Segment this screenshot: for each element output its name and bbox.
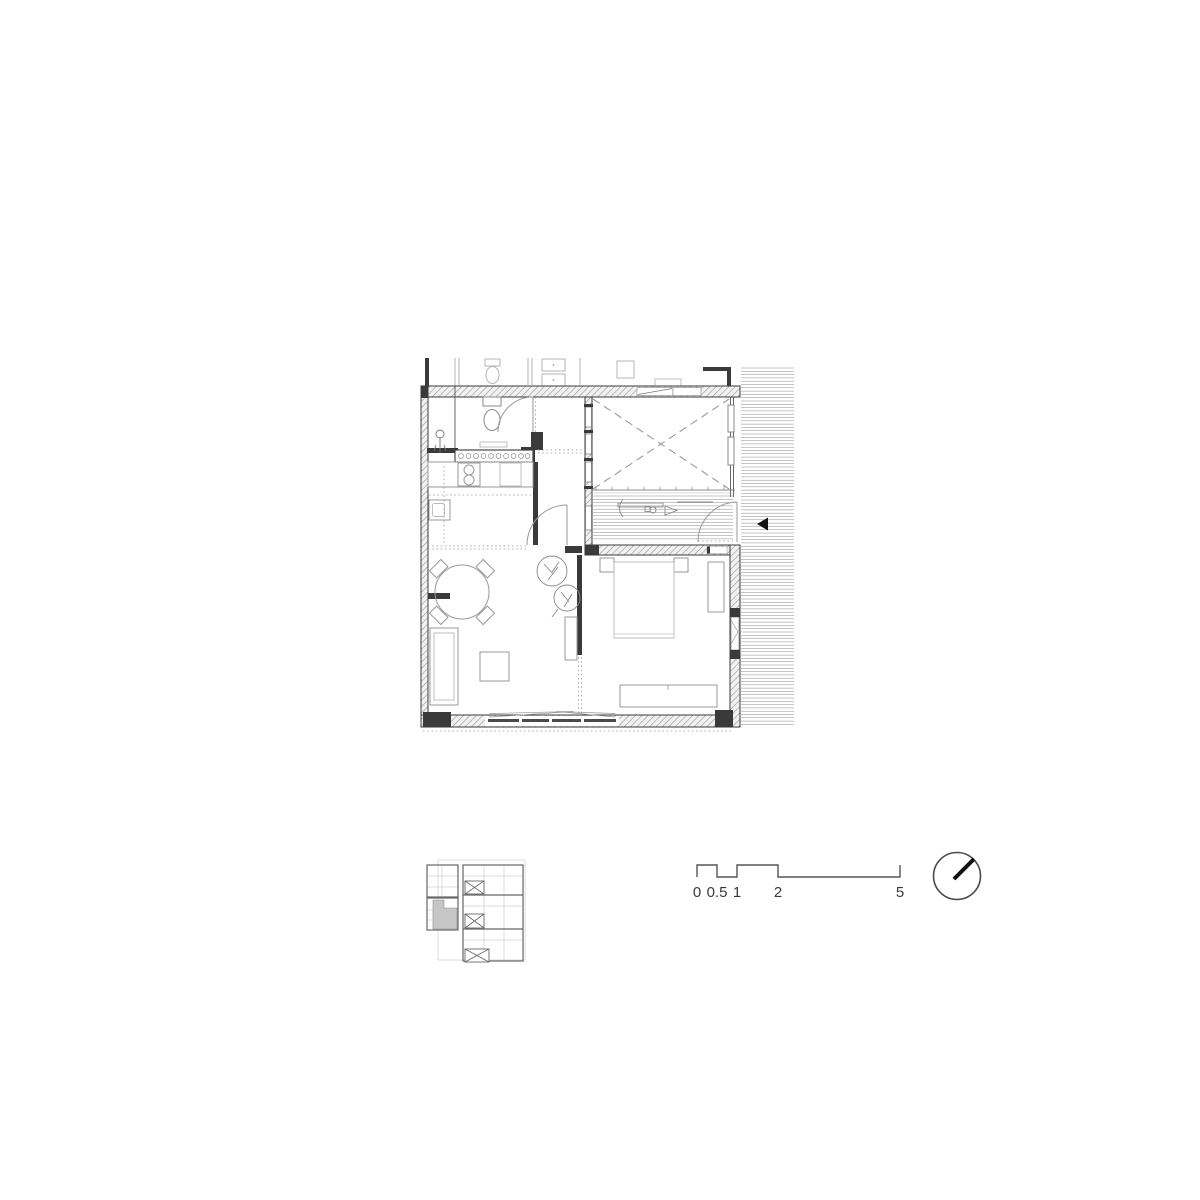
- sofa-cushions: [434, 633, 454, 700]
- key-plan-patios: [465, 881, 489, 962]
- dresser: [620, 685, 717, 707]
- neighbor-wall-stub: [425, 358, 429, 387]
- burner: [464, 475, 474, 485]
- burner: [464, 465, 474, 475]
- neighbor-toilet-tank: [485, 359, 500, 366]
- bed: [614, 562, 674, 638]
- scale-label-1: 1: [733, 884, 741, 901]
- corner-pier: [423, 712, 451, 727]
- neighbor-toilet-bowl: [486, 367, 499, 384]
- bathroom: [434, 397, 533, 452]
- walls: [421, 386, 740, 728]
- scale-label-2: 2: [774, 884, 782, 901]
- nightstand: [674, 558, 688, 572]
- plant: [552, 585, 580, 617]
- chair: [476, 606, 494, 624]
- plant: [537, 556, 567, 586]
- toilet-tank: [483, 397, 501, 406]
- glazing-panels: [488, 719, 616, 722]
- scale-bar-line: [697, 865, 900, 877]
- patio: [592, 399, 735, 493]
- chair: [476, 560, 494, 578]
- corner-pier: [715, 710, 733, 727]
- nightstand: [600, 558, 614, 572]
- dining-table: [435, 565, 489, 619]
- hall-kitchen-wall: [533, 462, 538, 545]
- bathroom-door-swing: [498, 397, 533, 432]
- side-deck: [741, 368, 794, 724]
- patio-window: [728, 437, 734, 465]
- sink-basin: [433, 504, 445, 517]
- outdoor-furniture: [618, 499, 713, 517]
- chair: [430, 560, 448, 578]
- living-room: [430, 556, 580, 705]
- patio-window: [728, 405, 734, 432]
- kitchen-shelf: [480, 442, 507, 447]
- chair: [430, 606, 448, 624]
- scale-label-05: 0.5: [707, 884, 728, 901]
- wardrobe: [708, 562, 724, 612]
- shower-edge: [427, 448, 458, 453]
- key-block-outline: [463, 865, 523, 961]
- north-needle: [954, 859, 974, 879]
- entry-door-swing: [698, 502, 737, 542]
- kitchen-counter-band: [455, 450, 533, 462]
- highlighted-unit: [433, 900, 457, 929]
- patio-wall-windows: [586, 407, 592, 530]
- left-wall: [421, 386, 428, 727]
- tv-unit: [565, 617, 577, 660]
- neighbor-fixture: [617, 361, 634, 378]
- top-wall-window: [673, 388, 701, 396]
- kitchen-unit: [500, 463, 521, 486]
- toilet-bowl: [484, 410, 500, 431]
- wall-stub: [428, 593, 450, 599]
- neighbor-unit-fragments: [425, 358, 731, 387]
- scale-label-0: 0: [693, 884, 701, 901]
- patio-x-mark: [593, 399, 729, 489]
- scale-bar: 0 0.5 1 2 5: [688, 850, 918, 905]
- bedroom: [600, 558, 724, 707]
- key-unit-outline: [427, 865, 458, 897]
- key-plan: [420, 848, 540, 973]
- floor-plan: [415, 350, 805, 740]
- coffee-table: [480, 652, 509, 681]
- entry-arrow-icon: [757, 518, 768, 531]
- scale-label-5: 5: [896, 884, 904, 901]
- north-indicator: [925, 845, 995, 915]
- entry-deck: [593, 496, 737, 542]
